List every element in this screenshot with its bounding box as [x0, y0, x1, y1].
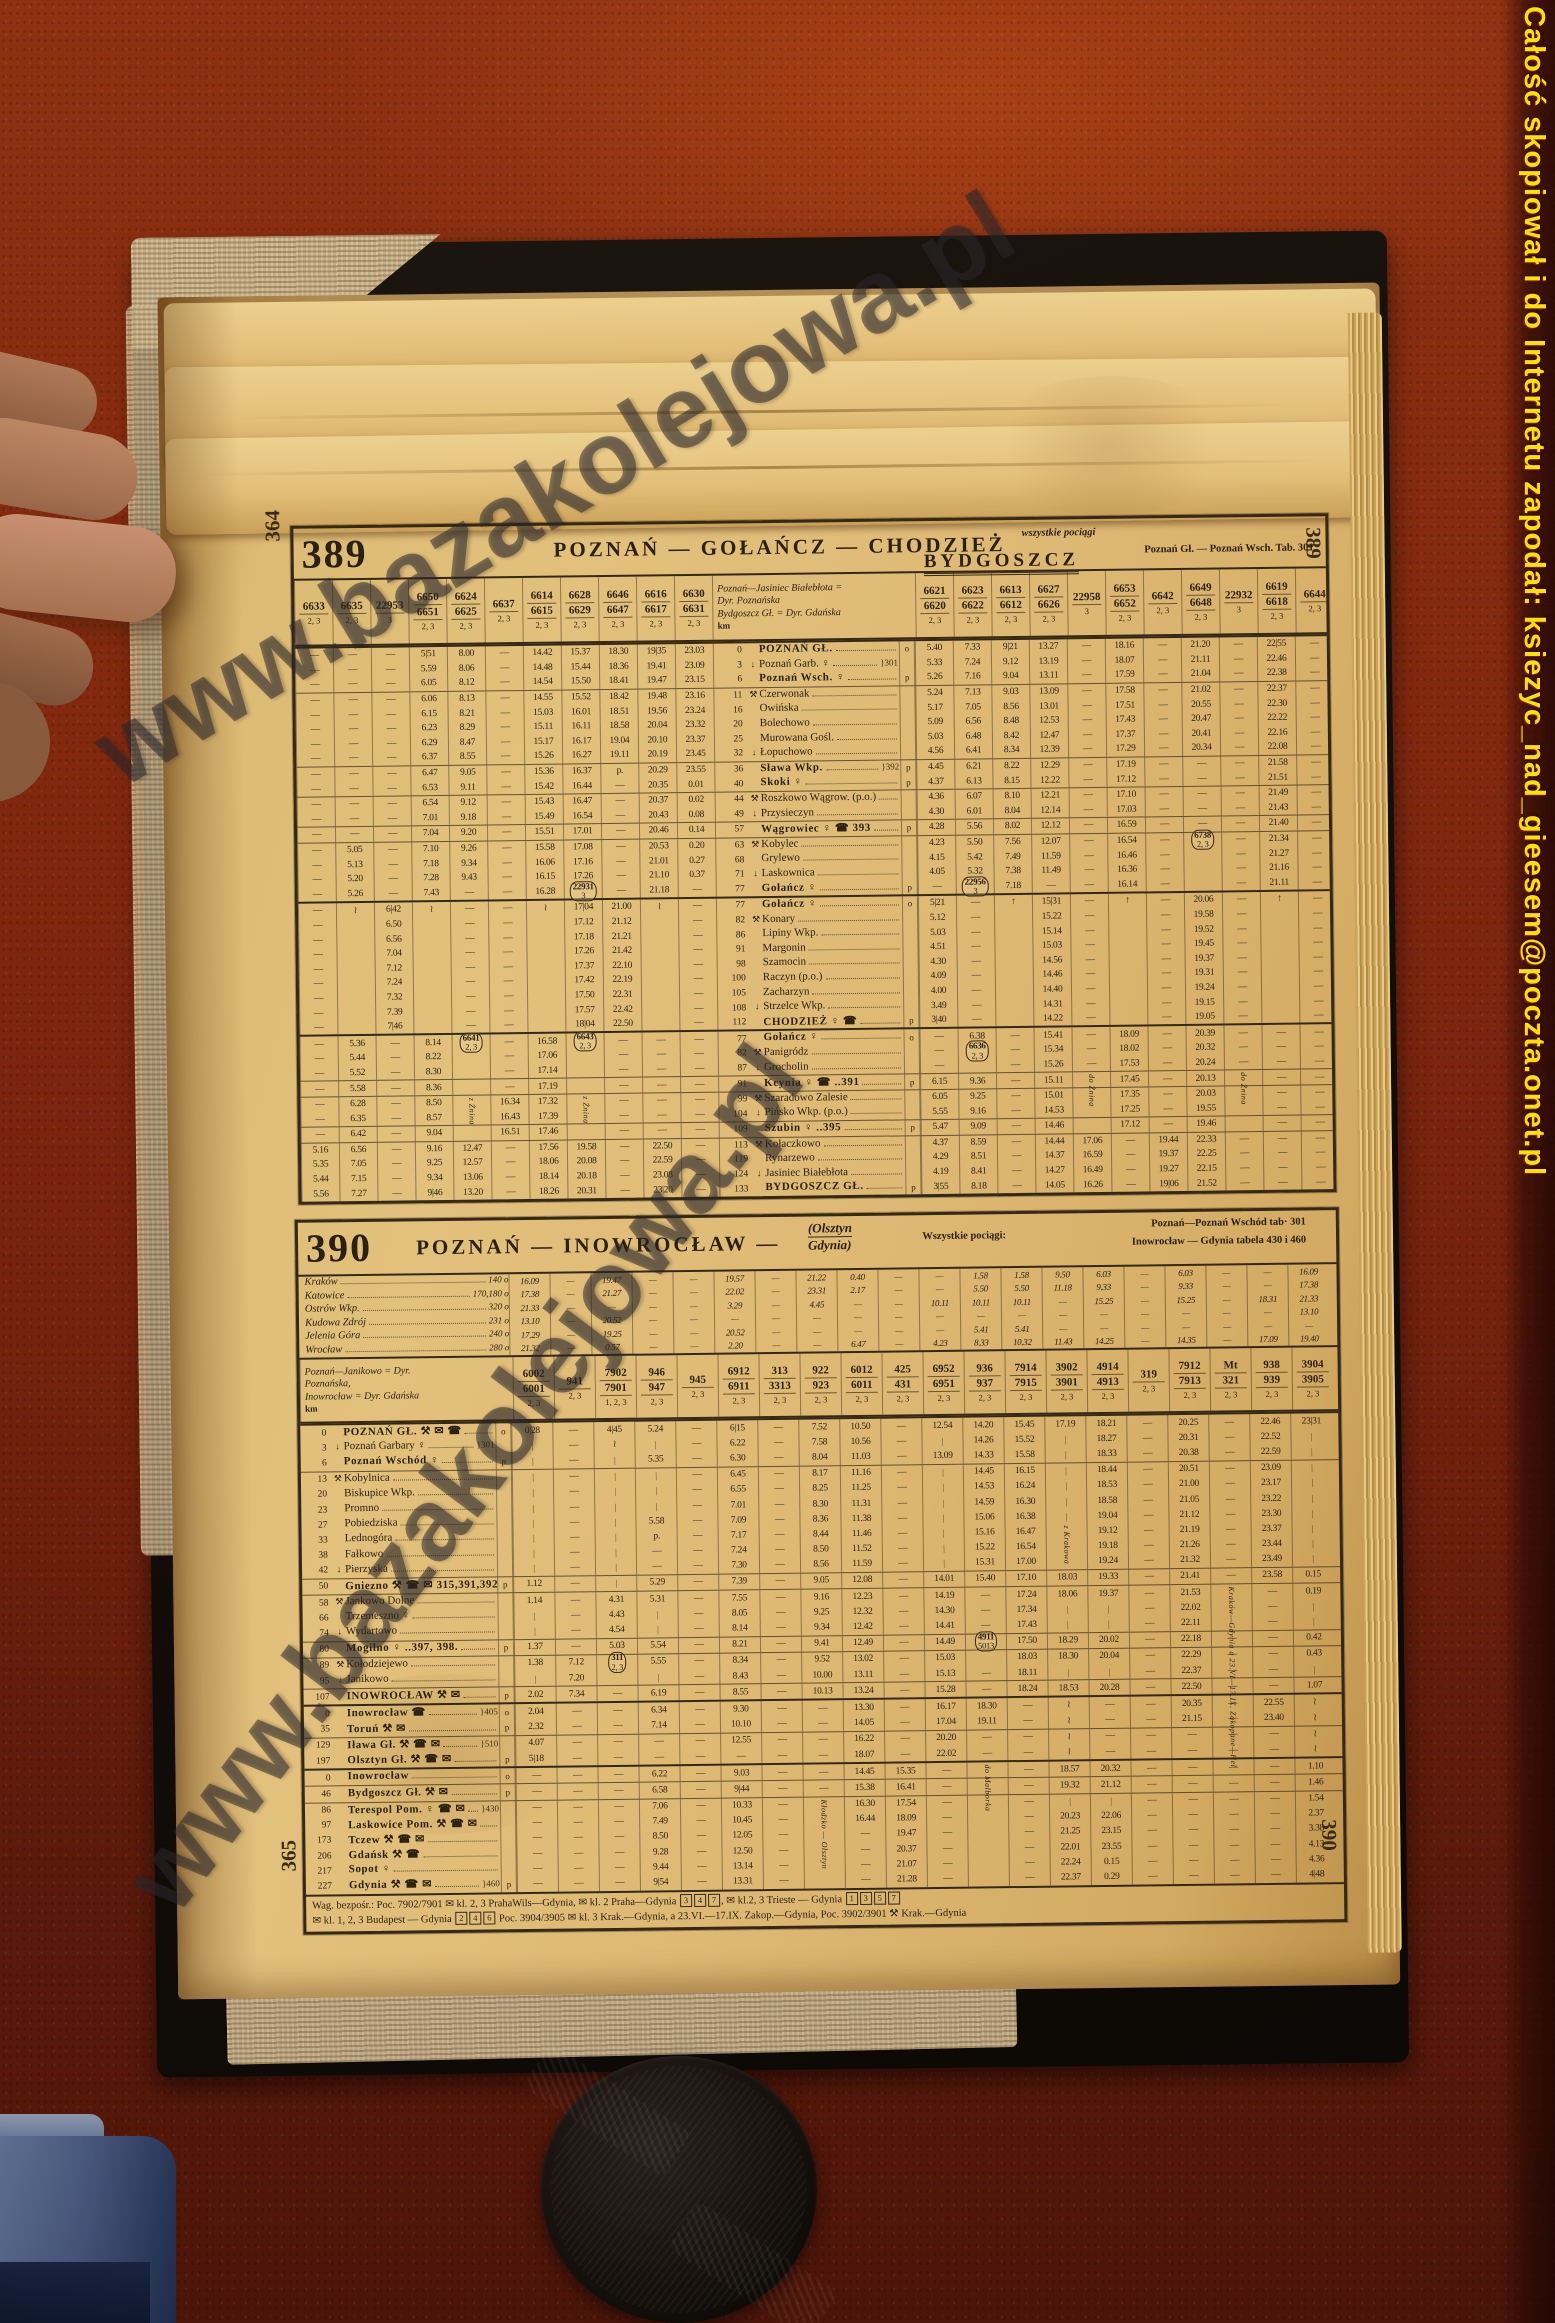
time-cell: 11.52	[841, 1541, 882, 1557]
time-cell: 8.50	[639, 1829, 680, 1845]
time-cell: 1.54	[1295, 1791, 1336, 1807]
time-cell: —	[1144, 757, 1182, 772]
time-cell: —	[1128, 1522, 1169, 1538]
hammers-icon: ⚒	[752, 1047, 764, 1058]
time-cell: 19.58	[567, 1140, 605, 1155]
page-content: 364 389 365 390 389 POZNAŃ — GOŁAŃCZ — C…	[192, 321, 1372, 1975]
time-cell: —	[1123, 1266, 1164, 1280]
time-cell: —	[758, 1512, 799, 1528]
time-cell: —	[1171, 1760, 1212, 1776]
time-cell: —	[554, 1530, 595, 1546]
station-cell: ↓Pińsko Wkp. (p.o.)	[750, 1105, 904, 1121]
time-cell: —	[1222, 876, 1260, 891]
time-cell: —	[1111, 1133, 1149, 1148]
time-cell: 23.22	[1250, 1491, 1291, 1507]
time-cell: 19.37	[1149, 1147, 1187, 1162]
time-cell: 7.49	[639, 1814, 680, 1830]
time-cell: —	[1132, 1853, 1173, 1869]
time-cell: 2.32	[515, 1719, 556, 1735]
time-cell: —	[1131, 1808, 1172, 1824]
time-cell: —	[1251, 1584, 1292, 1600]
time-cell: 6.34	[638, 1703, 679, 1719]
time-cell: 18.57	[1048, 1761, 1089, 1777]
boxed-day-number: 4	[469, 1912, 481, 1925]
time-cell: 7.04	[374, 946, 412, 961]
time-cell: —	[1299, 950, 1337, 965]
time-cell: —	[1165, 1320, 1206, 1334]
time-cell: —	[598, 1845, 639, 1861]
time-cell: —	[1089, 1697, 1130, 1713]
time-cell: —	[1068, 772, 1106, 787]
time-cell: —	[714, 1312, 755, 1326]
time-cell: —	[1145, 833, 1183, 848]
time-cell: 0.43	[1293, 1646, 1334, 1662]
time-cell: 16.38	[1004, 1509, 1045, 1525]
time-cell: —	[957, 968, 995, 983]
time-cell: —	[884, 1746, 925, 1762]
table-number: 390	[306, 1224, 373, 1272]
time-cell: 11.49	[1031, 863, 1069, 878]
time-cell: —	[1223, 965, 1261, 980]
time-cell: —	[487, 855, 525, 870]
time-cell: —	[758, 1450, 799, 1466]
rotated-note: do Malborka	[983, 1764, 993, 1811]
time-cell: —	[297, 827, 335, 842]
time-cell: 4.23	[919, 1336, 960, 1350]
time-cell: —	[1221, 832, 1259, 847]
time-cell	[967, 1810, 1008, 1826]
time-cell: —	[1144, 741, 1182, 756]
time-cell: 13.14	[722, 1858, 763, 1874]
time-cell: 14.55	[523, 690, 561, 705]
direction-cell	[496, 1470, 512, 1485]
time-cell: —	[1219, 652, 1257, 667]
km-cell: 3	[300, 1441, 329, 1457]
time-cell: 8.21	[719, 1637, 760, 1653]
time-cell: 5.31	[636, 1591, 677, 1607]
time-cell: —	[555, 1639, 596, 1655]
time-cell: —	[1254, 1791, 1295, 1807]
time-cell: 17.29	[509, 1328, 550, 1342]
time-cell: —	[295, 648, 333, 663]
time-cell: —	[1209, 1445, 1250, 1461]
time-cell: —	[679, 1749, 720, 1765]
time-cell: 15|31	[1032, 894, 1070, 909]
down-arrow-icon: ↓	[752, 1107, 764, 1117]
time-cell: 16.09	[1287, 1264, 1328, 1278]
time-cell: 9.05	[800, 1573, 841, 1589]
time-cell: —	[1222, 892, 1260, 907]
time-cell: —	[1128, 1569, 1169, 1585]
time-cell: —	[956, 910, 994, 925]
time-cell: —	[1296, 739, 1334, 754]
km-cell: 227	[306, 1879, 335, 1895]
time-cell: —	[1300, 1099, 1338, 1114]
time-cell: —	[881, 1495, 922, 1511]
time-cell: —	[1301, 1145, 1339, 1160]
time-cell: —	[844, 1842, 885, 1858]
time-cell: 19.27	[1149, 1162, 1187, 1177]
time-cell: —	[755, 1298, 796, 1312]
km-cell: 217	[306, 1864, 335, 1880]
direction-cell: o	[899, 641, 915, 656]
time-cell: —	[1042, 1294, 1083, 1308]
station-cell: Mogilno ♀ ..397, 398.	[332, 1640, 498, 1657]
time-cell	[527, 988, 565, 1003]
time-cell: —	[1301, 1131, 1339, 1146]
time-cell: 16.44	[844, 1811, 885, 1827]
time-cell: —	[1007, 1698, 1048, 1714]
time-cell: 6.30	[717, 1451, 758, 1467]
time-cell: |	[513, 1545, 554, 1561]
time-cell: —	[1223, 980, 1261, 995]
time-cell: 20.25	[1167, 1415, 1208, 1431]
time-cell	[336, 932, 374, 947]
time-cell: 16.49	[1073, 1163, 1111, 1178]
time-cell: —	[333, 648, 371, 663]
table-section: —5.36—8.1466412, 3—16.5866432, 3———77Goł…	[300, 1023, 1334, 1202]
train-number-cell: 9452, 3	[676, 1355, 718, 1417]
time-cell: |	[595, 1559, 636, 1575]
time-cell: 4.00	[919, 983, 957, 998]
time-cell: 16.15	[526, 869, 564, 884]
time-cell: 8.10	[993, 789, 1031, 804]
time-cell: —	[1295, 636, 1333, 651]
time-cell: —	[602, 883, 640, 898]
time-cell: —	[1214, 1852, 1255, 1868]
time-cell: 5.58	[338, 1081, 376, 1096]
time-cell: 11.59	[1031, 849, 1069, 864]
time-cell: 5.41	[960, 1322, 1001, 1336]
station-cell: Gdynia ⚒ ☎ ✉}460	[335, 1877, 501, 1894]
time-cell: —	[763, 1858, 804, 1874]
time-cell: 16.26	[1073, 1177, 1111, 1192]
time-cell: 18.58	[600, 719, 638, 734]
time-cell: —	[487, 841, 525, 856]
time-cell: —	[1148, 1056, 1186, 1071]
time-cell: —	[1071, 982, 1109, 997]
time-cell: 8.21	[448, 706, 486, 721]
time-cell: —	[1220, 711, 1258, 726]
time-cell: —	[486, 765, 524, 780]
time-cell: 18.30	[599, 645, 637, 660]
time-cell: 13.06	[453, 1170, 491, 1185]
time-cell: 21.52	[1187, 1176, 1225, 1191]
time-cell: 18.03	[1046, 1570, 1087, 1586]
time-cell: 20.04	[638, 718, 676, 733]
time-cell: —	[802, 1764, 843, 1780]
time-cell: 9.25	[801, 1604, 842, 1620]
time-cell: —	[1111, 1148, 1149, 1163]
time-cell: 15.25	[1165, 1293, 1206, 1307]
time-cell: —	[881, 1449, 922, 1465]
time-cell	[413, 1004, 451, 1019]
time-cell: —	[556, 1750, 597, 1766]
time-cell: 10.50	[839, 1419, 880, 1435]
down-arrow-icon: ↓	[331, 1441, 343, 1451]
time-cell: —	[1171, 1743, 1212, 1759]
time-cell: —	[557, 1845, 598, 1861]
km-cell: 58	[302, 1595, 331, 1611]
time-cell: —	[996, 1043, 1034, 1058]
time-cell: 7|46	[375, 1019, 413, 1034]
time-cell: —	[760, 1605, 801, 1621]
time-cell: —	[1147, 966, 1185, 981]
time-cell: 16.17	[925, 1699, 966, 1715]
time-cell: 20.13	[1186, 1071, 1224, 1086]
time-cell: 20.46	[639, 823, 677, 838]
time-cell: 8.56	[991, 699, 1029, 714]
time-cell: —	[450, 945, 488, 960]
time-cell: —	[1127, 1492, 1168, 1508]
km-cell: 91	[718, 1076, 750, 1091]
time-cell: —	[301, 1127, 339, 1142]
time-cell: 8.36	[414, 1080, 452, 1095]
down-arrow-icon: ↓	[753, 1168, 765, 1178]
time-cell: —	[845, 1857, 886, 1873]
time-cell: 12.14	[1031, 803, 1069, 818]
km-cell: 87	[718, 1061, 750, 1076]
time-cell: 14.45	[843, 1764, 884, 1780]
time-cell: 14.41	[924, 1618, 965, 1634]
train-number-cell: 390239012, 3	[1045, 1350, 1087, 1412]
table-note-ref2: Inowrocław — Gdynia tabela 430 i 460	[1132, 1234, 1306, 1247]
time-cell: 18.06	[1046, 1586, 1087, 1602]
time-cell: —	[761, 1748, 802, 1764]
time-cell: 12.29	[1030, 758, 1068, 773]
time-cell: 20.38	[1168, 1445, 1209, 1461]
time-cell: 16.11	[562, 719, 600, 734]
time-cell: 17.50	[565, 988, 603, 1003]
station-cell: CHODZIEŻ ♀ ☎	[749, 1013, 903, 1029]
time-cell	[412, 946, 450, 961]
time-cell: —	[1252, 1678, 1293, 1694]
time-cell: 23.16	[675, 688, 713, 703]
time-cell: |	[1088, 1664, 1129, 1680]
time-cell: —	[881, 1480, 922, 1496]
time-cell: —	[926, 1795, 967, 1811]
time-cell: —	[1222, 921, 1260, 936]
time-cell: |	[512, 1484, 553, 1500]
time-cell: 13.01	[1029, 699, 1067, 714]
time-cell: 14.01	[923, 1572, 964, 1588]
train-number-cell: 601260112, 3	[840, 1353, 882, 1415]
time-cell: —	[488, 916, 526, 931]
time-cell: —	[759, 1542, 800, 1558]
time-cell: —	[680, 1092, 718, 1107]
time-cell: 16.36	[1107, 862, 1145, 877]
time-cell: 5.55	[920, 1104, 958, 1119]
time-cell: —	[884, 1715, 925, 1731]
table-section: 0Inowrocławo———6.22—9.03——14.4515.35—do …	[304, 1756, 1343, 1894]
time-cell: —	[1225, 1146, 1263, 1161]
time-cell: —	[632, 1286, 673, 1300]
time-cell: 17.12	[1106, 772, 1144, 787]
direction-cell: o	[903, 1030, 919, 1045]
time-cell: 21.16	[1259, 860, 1297, 875]
time-cell: —	[1124, 1320, 1165, 1334]
time-cell: —	[605, 1124, 643, 1139]
time-cell: —	[1070, 938, 1108, 953]
time-cell: —	[995, 1028, 1033, 1043]
time-cell: 21.02	[1181, 682, 1219, 697]
km-cell: 0	[305, 1771, 334, 1787]
time-cell: —	[1210, 1568, 1251, 1584]
time-cell: —	[1130, 1728, 1171, 1744]
time-cell: —	[965, 1665, 1006, 1681]
time-cell: 5.50	[960, 1282, 1001, 1296]
time-cell: —	[636, 1559, 677, 1575]
time-cell: —	[1129, 1679, 1170, 1695]
boxed-day-number: 7	[888, 1891, 900, 1904]
time-cell: —	[676, 1513, 717, 1529]
time-cell: —	[1071, 967, 1109, 982]
time-cell: —	[597, 1767, 638, 1783]
direction-cell	[496, 1515, 512, 1530]
time-cell: 19.24	[1087, 1553, 1128, 1569]
time-cell: 15.01	[1034, 1088, 1072, 1103]
time-cell: —	[926, 1841, 967, 1857]
time-cell: 19.05	[1185, 1009, 1223, 1024]
time-cell: 6.03	[1082, 1267, 1123, 1281]
time-cell: 17.43	[1006, 1617, 1047, 1633]
time-cell: 8.17	[799, 1466, 840, 1482]
time-cell: —	[1111, 1162, 1149, 1177]
time-cell: —	[605, 1154, 643, 1169]
time-cell: 18.26	[529, 1184, 567, 1199]
time-cell: |	[1292, 1551, 1333, 1567]
time-cell: —	[334, 736, 372, 751]
time-cell: 5.29	[636, 1575, 677, 1591]
time-cell: —	[1067, 668, 1105, 683]
station-cell: Bydgoszcz Gł. ⚒ ✉	[334, 1785, 500, 1802]
time-cell: 20.23	[1049, 1809, 1090, 1825]
time-cell: 19.04	[1086, 1508, 1127, 1524]
time-cell: —	[488, 945, 526, 960]
time-cell: —	[883, 1619, 924, 1635]
time-cell: |	[637, 1669, 678, 1685]
direction-cell: p	[905, 1180, 921, 1195]
time-cell: —	[373, 842, 411, 857]
time-cell: |	[1047, 1617, 1088, 1633]
time-cell: —	[1253, 1726, 1294, 1742]
time-cell: —	[1219, 637, 1257, 652]
time-cell: 14.20	[962, 1417, 1003, 1433]
time-cell: |	[923, 1540, 964, 1556]
time-cell: —	[295, 663, 333, 678]
time-cell: 21.32	[509, 1341, 550, 1355]
time-cell: 19.37	[1185, 951, 1223, 966]
time-cell: —	[1072, 1056, 1110, 1071]
time-cell: 5.24	[915, 686, 953, 701]
time-cell: —	[1148, 1041, 1186, 1056]
time-cell: 15.11	[1034, 1073, 1072, 1088]
time-cell: 49115013	[965, 1634, 1006, 1650]
km-cell: 0	[300, 1425, 329, 1441]
time-cell: —	[878, 1310, 919, 1324]
time-cell: 18.07	[1105, 653, 1143, 668]
time-cell: 18.21	[1085, 1416, 1126, 1432]
time-cell: —	[1007, 1713, 1048, 1729]
time-cell: 7.16	[953, 669, 991, 684]
time-cell: —	[996, 1073, 1034, 1088]
time-cell: —	[333, 693, 371, 708]
time-cell: 9.25	[958, 1089, 996, 1104]
time-cell: —	[451, 1018, 489, 1033]
time-cell: 12.53	[1030, 713, 1068, 728]
km-cell: 35	[304, 1722, 333, 1738]
time-cell: 23.17	[1250, 1475, 1291, 1491]
time-cell: 6.47	[837, 1337, 878, 1351]
km-cell: 71	[715, 867, 747, 882]
time-cell: —	[1252, 1662, 1293, 1678]
time-cell: 17.35	[1110, 1087, 1148, 1102]
time-cell: 20.08	[567, 1154, 605, 1169]
time-cell: —	[673, 1312, 714, 1326]
time-cell: 6.45	[717, 1467, 758, 1483]
time-cell: —	[554, 1576, 595, 1592]
direction-cell	[903, 998, 919, 1013]
time-cell: 6.48	[954, 729, 992, 744]
time-cell: —	[377, 1142, 415, 1157]
km-cell: 206	[305, 1848, 334, 1864]
connection-station: Wrocław280 o	[299, 1342, 509, 1358]
time-cell: —	[679, 986, 717, 1001]
train-number-cell: 66442, 3	[1295, 568, 1334, 632]
time-cell: —	[1173, 1868, 1214, 1884]
time-cell: 9.34	[449, 856, 487, 871]
time-cell: 20.35	[638, 777, 676, 792]
time-cell: 22.38	[1257, 666, 1295, 681]
time-cell: 4.37	[916, 774, 954, 789]
time-cell	[1261, 994, 1299, 1009]
time-cell: —	[1297, 815, 1335, 830]
time-cell: —	[760, 1652, 801, 1668]
time-cell: 7.09	[717, 1512, 758, 1528]
time-cell: 17.25	[1110, 1102, 1148, 1117]
time-cell: 0.15	[1292, 1567, 1333, 1583]
time-cell: —	[334, 767, 372, 782]
time-cell: 17.45	[1110, 1072, 1148, 1087]
time-cell: 16.46	[1107, 848, 1145, 863]
time-cell: 21.51	[1258, 770, 1296, 785]
time-cell: —	[1143, 653, 1181, 668]
time-cell: 22.33	[1187, 1132, 1225, 1147]
time-cell: 4.23	[917, 835, 955, 850]
time-cell	[566, 1063, 604, 1078]
time-cell: —	[373, 811, 411, 826]
boxed-day-number: 3	[860, 1891, 872, 1904]
hammers-icon: ⚒	[752, 1093, 764, 1104]
time-cell: 19.52	[1184, 922, 1222, 937]
time-cell: ≀	[640, 899, 678, 914]
train-number-cell: Mt3212, 3	[1209, 1348, 1251, 1410]
time-cell: 16.09	[508, 1274, 549, 1288]
time-cell: 4.09	[919, 969, 957, 984]
time-cell: 18.07	[843, 1747, 884, 1763]
time-cell: 15.52	[1003, 1432, 1044, 1448]
time-cell	[967, 1825, 1008, 1841]
time-cell: 5.50	[955, 835, 993, 850]
time-cell: —	[1071, 1027, 1109, 1042]
time-cell: 14.30	[924, 1603, 965, 1619]
time-cell: 21.11	[1181, 652, 1219, 667]
time-cell: 18.53	[1086, 1477, 1127, 1493]
time-cell: —	[1300, 1069, 1338, 1084]
time-cell: —	[1007, 1729, 1048, 1745]
time-cell: 8.04	[993, 803, 1031, 818]
time-cell: —	[1129, 1632, 1170, 1648]
